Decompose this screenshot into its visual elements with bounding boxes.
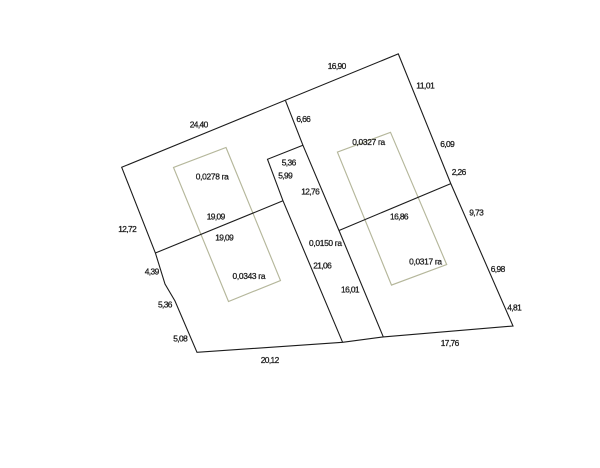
svg-text:2,26: 2,26: [452, 167, 467, 177]
svg-text:5,36: 5,36: [158, 299, 173, 309]
svg-text:12,76: 12,76: [301, 187, 320, 197]
svg-text:21,06: 21,06: [313, 261, 332, 271]
svg-text:24,40: 24,40: [190, 120, 209, 130]
svg-text:16,01: 16,01: [341, 285, 360, 295]
svg-text:0,0327 га: 0,0327 га: [352, 137, 385, 147]
svg-text:0,0343 га: 0,0343 га: [233, 271, 266, 281]
svg-text:16,90: 16,90: [328, 61, 347, 71]
svg-text:19,09: 19,09: [207, 212, 226, 222]
svg-text:5,36: 5,36: [282, 158, 297, 168]
svg-text:6,66: 6,66: [296, 114, 311, 124]
svg-text:4,39: 4,39: [145, 267, 160, 277]
svg-text:17,76: 17,76: [441, 338, 460, 348]
svg-text:16,86: 16,86: [390, 212, 409, 222]
svg-text:5,99: 5,99: [278, 171, 293, 181]
svg-text:4,81: 4,81: [507, 302, 522, 312]
svg-text:6,09: 6,09: [440, 139, 455, 149]
svg-text:12,72: 12,72: [118, 224, 137, 234]
svg-text:0,0278 га: 0,0278 га: [196, 172, 229, 182]
svg-text:19,09: 19,09: [215, 233, 234, 243]
svg-text:0,0317 га: 0,0317 га: [409, 256, 442, 266]
svg-text:0,0150 га: 0,0150 га: [309, 238, 342, 248]
svg-text:5,08: 5,08: [173, 334, 188, 344]
svg-text:11,01: 11,01: [416, 81, 435, 91]
svg-text:9,73: 9,73: [469, 208, 484, 218]
svg-text:6,98: 6,98: [491, 264, 506, 274]
svg-text:20,12: 20,12: [261, 355, 280, 365]
